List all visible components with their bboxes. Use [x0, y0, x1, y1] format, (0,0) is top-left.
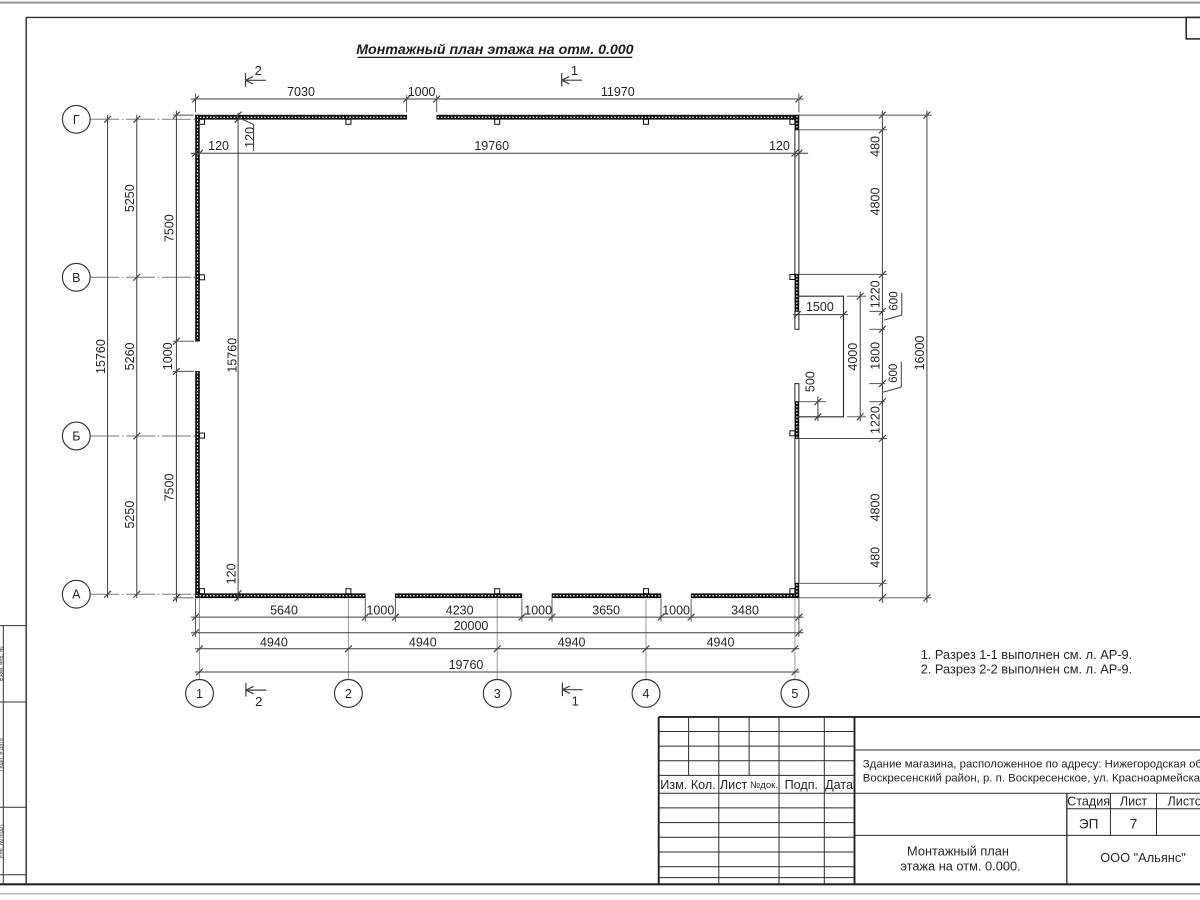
svg-text:4000: 4000	[846, 343, 860, 371]
svg-text:7500: 7500	[162, 214, 176, 242]
svg-text:ООО "Альянс": ООО "Альянс"	[1100, 850, 1186, 865]
svg-text:Инв. № подл.: Инв. № подл.	[0, 823, 5, 858]
svg-text:5250: 5250	[123, 184, 137, 212]
svg-text:1220: 1220	[869, 406, 883, 434]
svg-text:1. Разрез 1-1 выполнен см. л.: 1. Разрез 1-1 выполнен см. л. АР-9.	[921, 647, 1133, 662]
svg-text:4: 4	[643, 687, 650, 701]
svg-text:600: 600	[888, 364, 900, 383]
svg-text:Дата: Дата	[825, 778, 853, 792]
svg-text:Б: Б	[72, 430, 80, 444]
svg-text:2: 2	[255, 63, 262, 78]
svg-text:Изм.: Изм.	[660, 778, 687, 792]
svg-text:3480: 3480	[731, 604, 759, 618]
svg-text:15760: 15760	[94, 339, 108, 374]
svg-text:Подп. и дата: Подп. и дата	[0, 737, 5, 771]
svg-text:7030: 7030	[287, 85, 315, 99]
svg-text:20000: 20000	[454, 619, 489, 633]
svg-text:Кол.: Кол.	[691, 778, 716, 792]
svg-text:3650: 3650	[592, 604, 620, 618]
svg-text:1800: 1800	[869, 342, 883, 370]
svg-text:5: 5	[791, 687, 798, 701]
svg-text:Стадия: Стадия	[1067, 794, 1110, 808]
svg-text:Лист: Лист	[720, 778, 748, 792]
svg-text:4940: 4940	[558, 635, 586, 649]
svg-text:А: А	[72, 588, 81, 602]
svg-text:1: 1	[196, 687, 203, 701]
svg-text:19760: 19760	[474, 139, 509, 153]
svg-text:Листов: Листов	[1168, 794, 1200, 808]
svg-text:Подп.: Подп.	[785, 778, 818, 792]
svg-text:2: 2	[255, 694, 262, 709]
svg-text:5640: 5640	[270, 604, 298, 618]
svg-text:4800: 4800	[869, 188, 883, 216]
svg-text:120: 120	[769, 139, 790, 153]
svg-text:16000: 16000	[913, 336, 927, 371]
svg-text:4800: 4800	[869, 494, 883, 522]
svg-text:7500: 7500	[162, 474, 176, 502]
svg-text:120: 120	[243, 127, 257, 148]
svg-text:2. Разрез 2-2 выполнен см. л.: 2. Разрез 2-2 выполнен см. л. АР-9.	[921, 662, 1133, 677]
svg-text:120: 120	[208, 139, 229, 153]
svg-text:Г: Г	[73, 113, 80, 127]
svg-text:11970: 11970	[601, 85, 635, 99]
svg-text:1000: 1000	[161, 342, 175, 370]
svg-text:4230: 4230	[446, 604, 474, 618]
svg-text:500: 500	[804, 371, 818, 392]
svg-text:ЭП: ЭП	[1079, 817, 1099, 832]
svg-text:1220: 1220	[869, 280, 883, 308]
svg-text:Воскресенский район, р. п. Вос: Воскресенский район, р. п. Воскресенское…	[863, 773, 1200, 785]
svg-text:5250: 5250	[123, 501, 137, 529]
svg-text:этажа на отм. 0.000.: этажа на отм. 0.000.	[900, 858, 1020, 873]
svg-text:В: В	[72, 271, 80, 285]
svg-text:1000: 1000	[662, 604, 690, 618]
svg-text:Здание магазина, расположенное: Здание магазина, расположенное по адресу…	[863, 759, 1200, 771]
svg-text:1500: 1500	[806, 300, 834, 314]
svg-text:480: 480	[869, 136, 883, 157]
svg-text:Монтажный план: Монтажный план	[907, 843, 1009, 858]
svg-text:1000: 1000	[524, 604, 552, 618]
svg-text:4940: 4940	[409, 635, 437, 649]
svg-text:1: 1	[572, 694, 579, 709]
svg-text:1000: 1000	[408, 85, 436, 99]
svg-text:№док.: №док.	[750, 780, 778, 791]
svg-text:15760: 15760	[225, 338, 239, 373]
svg-text:3: 3	[494, 687, 501, 701]
svg-text:4940: 4940	[260, 635, 288, 649]
svg-text:Монтажный план этажа на отм. 0: Монтажный план этажа на отм. 0.000	[356, 42, 633, 58]
svg-text:19760: 19760	[449, 658, 484, 672]
svg-text:7: 7	[1130, 817, 1138, 832]
svg-text:1000: 1000	[366, 604, 394, 618]
svg-text:5260: 5260	[123, 342, 137, 370]
svg-text:600: 600	[889, 291, 901, 310]
svg-text:120: 120	[225, 563, 239, 584]
svg-text:480: 480	[869, 547, 883, 568]
svg-text:Лист: Лист	[1120, 794, 1148, 808]
svg-text:2: 2	[345, 687, 352, 701]
svg-text:1: 1	[571, 63, 578, 78]
svg-text:Взам. инв. №: Взам. инв. №	[0, 646, 5, 681]
svg-text:4940: 4940	[707, 635, 735, 649]
